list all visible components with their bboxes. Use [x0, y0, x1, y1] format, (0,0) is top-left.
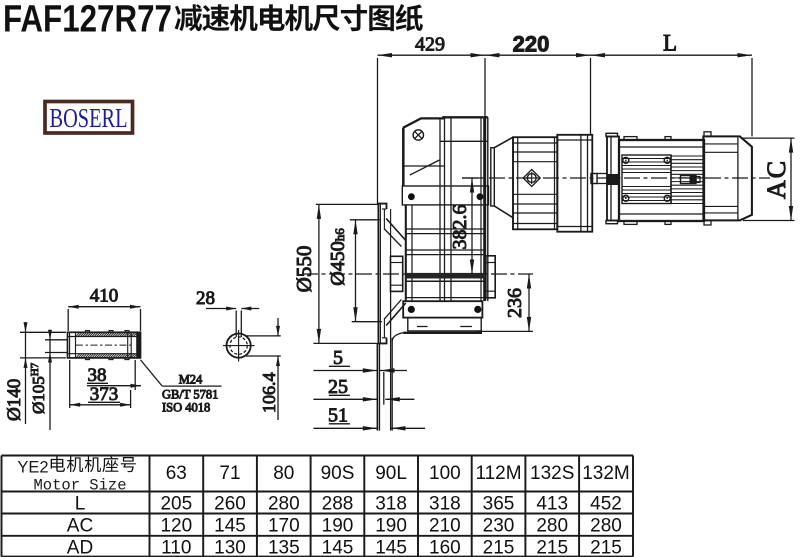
svg-text:GB/T 5781: GB/T 5781 — [162, 387, 218, 401]
svg-text:215: 215 — [590, 538, 622, 557]
svg-text:90S: 90S — [321, 463, 355, 484]
svg-text:190: 190 — [375, 516, 407, 537]
svg-text:280: 280 — [536, 516, 568, 537]
svg-text:210: 210 — [429, 516, 461, 537]
svg-text:280: 280 — [268, 494, 300, 515]
svg-text:280: 280 — [590, 516, 622, 537]
svg-text:AC: AC — [762, 159, 791, 199]
svg-text:M24: M24 — [179, 373, 203, 387]
svg-text:318: 318 — [429, 494, 461, 515]
svg-text:288: 288 — [322, 494, 354, 515]
svg-text:28: 28 — [196, 288, 215, 309]
svg-text:FAF127R77: FAF127R77 — [3, 0, 172, 41]
svg-text:205: 205 — [160, 494, 192, 515]
svg-text:135: 135 — [268, 538, 300, 557]
svg-text:132M: 132M — [582, 463, 630, 484]
svg-text:215: 215 — [536, 538, 568, 557]
svg-text:413: 413 — [536, 494, 568, 515]
svg-text:100: 100 — [429, 463, 461, 484]
svg-text:90L: 90L — [375, 463, 407, 484]
svg-text:410: 410 — [90, 286, 119, 307]
svg-text:BOSERL: BOSERL — [50, 102, 128, 133]
svg-text:452: 452 — [590, 494, 622, 515]
svg-text:230: 230 — [483, 516, 515, 537]
svg-text:145: 145 — [214, 516, 246, 537]
svg-text:80: 80 — [273, 463, 294, 484]
svg-text:120: 120 — [160, 516, 192, 537]
svg-text:130: 130 — [214, 538, 246, 557]
svg-text:ISO 4018: ISO 4018 — [162, 401, 210, 415]
svg-text:112M: 112M — [475, 463, 521, 484]
svg-text:AD: AD — [67, 538, 93, 557]
svg-text:236: 236 — [504, 288, 526, 318]
svg-text:AC: AC — [67, 516, 93, 537]
svg-text:132S: 132S — [530, 463, 574, 484]
svg-text:YE2: YE2 — [17, 459, 48, 477]
svg-text:160: 160 — [429, 538, 461, 557]
svg-text:145: 145 — [322, 538, 354, 557]
svg-text:Ø140: Ø140 — [4, 379, 25, 421]
svg-text:Motor Size: Motor Size — [33, 477, 126, 495]
svg-text:L: L — [663, 31, 677, 56]
svg-text:71: 71 — [219, 463, 240, 484]
svg-text:190: 190 — [322, 516, 354, 537]
svg-text:106.4: 106.4 — [259, 373, 279, 414]
svg-text:170: 170 — [268, 516, 300, 537]
svg-text:365: 365 — [483, 494, 515, 515]
svg-text:145: 145 — [375, 538, 407, 557]
svg-text:260: 260 — [214, 494, 246, 515]
svg-text:220: 220 — [513, 32, 550, 57]
svg-text:215: 215 — [483, 538, 515, 557]
svg-text:382.6: 382.6 — [449, 205, 471, 250]
svg-text:63: 63 — [166, 463, 187, 484]
svg-text:110: 110 — [161, 538, 191, 557]
svg-text:429: 429 — [415, 34, 445, 56]
svg-text:Ø550: Ø550 — [292, 246, 316, 293]
svg-text:318: 318 — [375, 494, 407, 515]
svg-text:L: L — [75, 494, 86, 515]
